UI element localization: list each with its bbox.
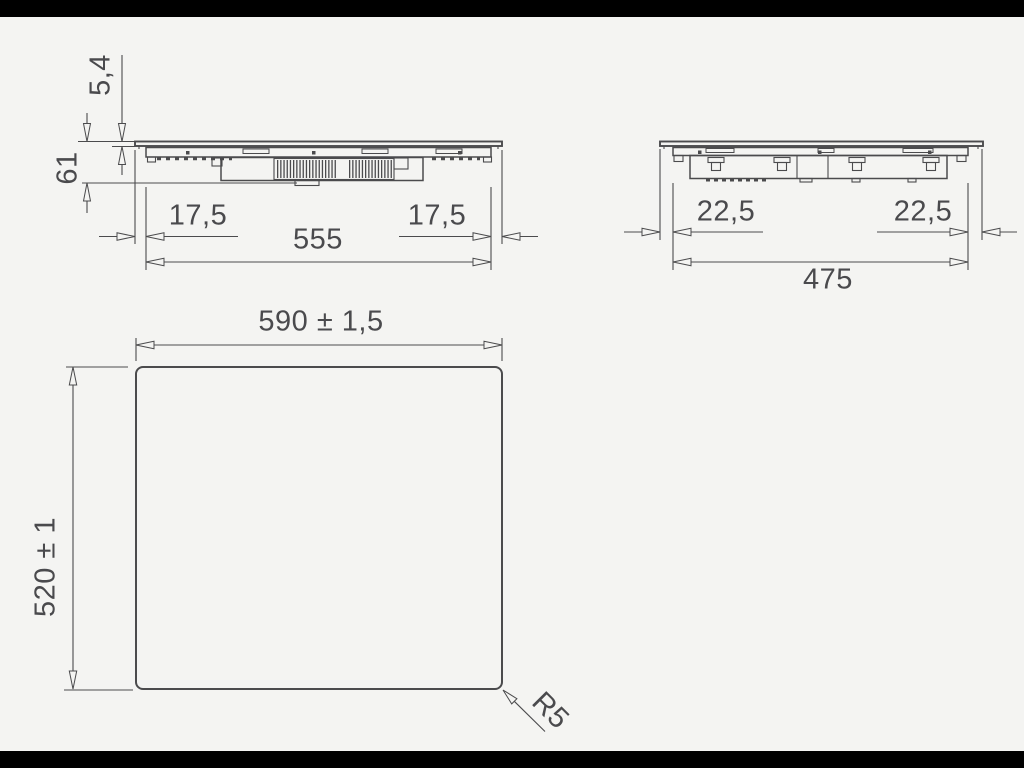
dim-right-overhang xyxy=(877,228,1017,235)
label-cutout-width: 590 ± 1,5 xyxy=(258,306,383,339)
dim-left-overhang xyxy=(99,233,238,240)
cutout-rectangle xyxy=(136,367,502,689)
label-mount-height: 61 xyxy=(52,151,85,184)
dim-cutout-width xyxy=(136,338,502,361)
screw-posts xyxy=(708,158,939,171)
label-cutout-height: 520 ± 1 xyxy=(30,517,63,617)
heatsink-block xyxy=(274,159,394,180)
label-front-right-overhang: 22,5 xyxy=(894,196,952,229)
hob-dimension-drawing xyxy=(0,0,1024,768)
body-box xyxy=(690,156,947,179)
label-glass-thickness: 5,4 xyxy=(85,54,118,96)
label-front-left-overhang: 22,5 xyxy=(697,196,755,229)
cutout-view xyxy=(64,338,545,732)
dim-body-width xyxy=(146,258,491,265)
label-side-body-width: 555 xyxy=(293,224,343,257)
front-profile-view xyxy=(624,142,1017,271)
glass-plate xyxy=(660,142,983,147)
dim-left-overhang xyxy=(624,228,763,235)
label-side-right-overhang: 17,5 xyxy=(408,200,466,233)
label-side-left-overhang: 17,5 xyxy=(169,200,227,233)
glass-plate xyxy=(135,142,502,147)
technical-drawing-page: 5,4 61 17,5 555 17,5 22,5 475 22,5 590 ±… xyxy=(0,0,1024,768)
label-front-body-width: 475 xyxy=(803,264,853,297)
dim-right-overhang xyxy=(399,233,538,240)
dim-cutout-height xyxy=(64,367,133,690)
dim-mount-height xyxy=(84,113,91,213)
